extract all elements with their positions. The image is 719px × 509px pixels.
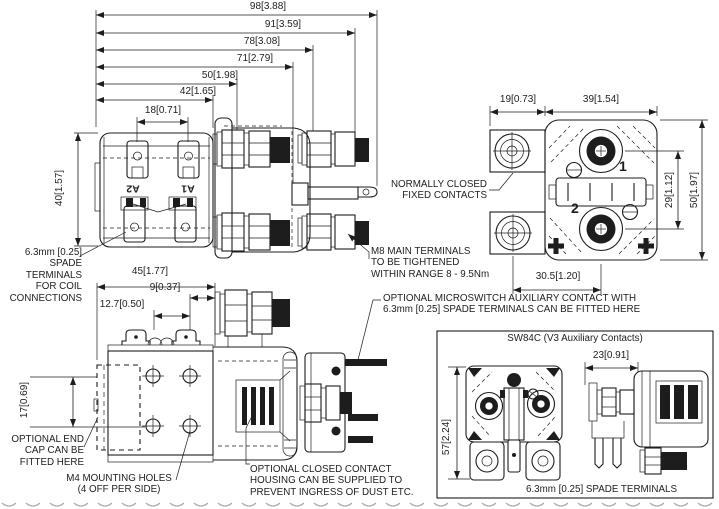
technical-drawing-page: 98[3.88] 91[3.59] 78[3.08] 71[2.79] 50[1…	[0, 0, 719, 509]
dim-42: 42[1.65]	[163, 86, 233, 98]
dim-17: 17[0.69]	[19, 368, 31, 432]
coil-terminal-a2: A2	[122, 182, 144, 193]
inset-title: SW84C (V3 Auxiliary Contacts)	[437, 333, 713, 344]
dim-9: 9[0.37]	[130, 282, 200, 294]
label-m8-main-terminals: M8 MAIN TERMINALS TO BE TIGHTENED WITHIN…	[371, 246, 531, 280]
dim-45: 45[1.77]	[115, 266, 185, 278]
label-nc-fixed-contacts: NORMALLY CLOSED FIXED CONTACTS	[387, 179, 487, 202]
dim-30-5: 30.5[1.20]	[523, 271, 593, 283]
end-view	[490, 120, 657, 260]
dim-19: 19[0.73]	[483, 94, 553, 106]
side-view	[213, 118, 377, 258]
coil-terminal-a1: A1	[177, 182, 199, 193]
drawing-canvas	[0, 0, 719, 509]
label-m4-mounting-holes: M4 MOUNTING HOLES (4 OFF PER SIDE)	[60, 473, 178, 496]
bottom-view	[94, 290, 387, 462]
label-microswitch-aux-contact: OPTIONAL MICROSWITCH AUXILIARY CONTACT W…	[383, 293, 713, 316]
dim-18: 18[0.71]	[128, 105, 198, 117]
dim-50: 50[1.98]	[185, 70, 255, 82]
dim-front-height	[74, 133, 98, 246]
label-contact-housing: OPTIONAL CLOSED CONTACT HOUSING CAN BE S…	[250, 464, 430, 498]
dim-12-7: 12.7[0.50]	[87, 299, 157, 311]
inset-aux-contacts	[437, 331, 713, 498]
dim-39: 39[1.54]	[566, 94, 636, 106]
main-contact-1: 1	[619, 158, 633, 174]
label-inset-spade-terminals: 6.3mm [0.25] SPADE TERMINALS	[526, 484, 716, 495]
dim-57: 57[2.24]	[441, 405, 453, 469]
label-coil-spade-terminals: 6.3mm [0.25] SPADE TERMINALS FOR COIL CO…	[2, 247, 82, 304]
main-contact-2: 2	[571, 200, 585, 216]
label-optional-end-cap: OPTIONAL END CAP CAN BE FITTED HERE	[0, 434, 84, 468]
dim-50-end: 50[1.97]	[689, 158, 701, 222]
scalloped-border	[2, 503, 712, 506]
dim-91: 91[3.59]	[248, 19, 318, 31]
dim-40: 40[1.57]	[54, 156, 66, 220]
dim-98: 98[3.88]	[233, 1, 303, 13]
dim-71: 71[2.79]	[220, 53, 290, 65]
dim-78: 78[3.08]	[227, 36, 297, 48]
dim-29: 29[1.12]	[664, 158, 676, 222]
dim-23: 23[0.91]	[576, 350, 646, 362]
